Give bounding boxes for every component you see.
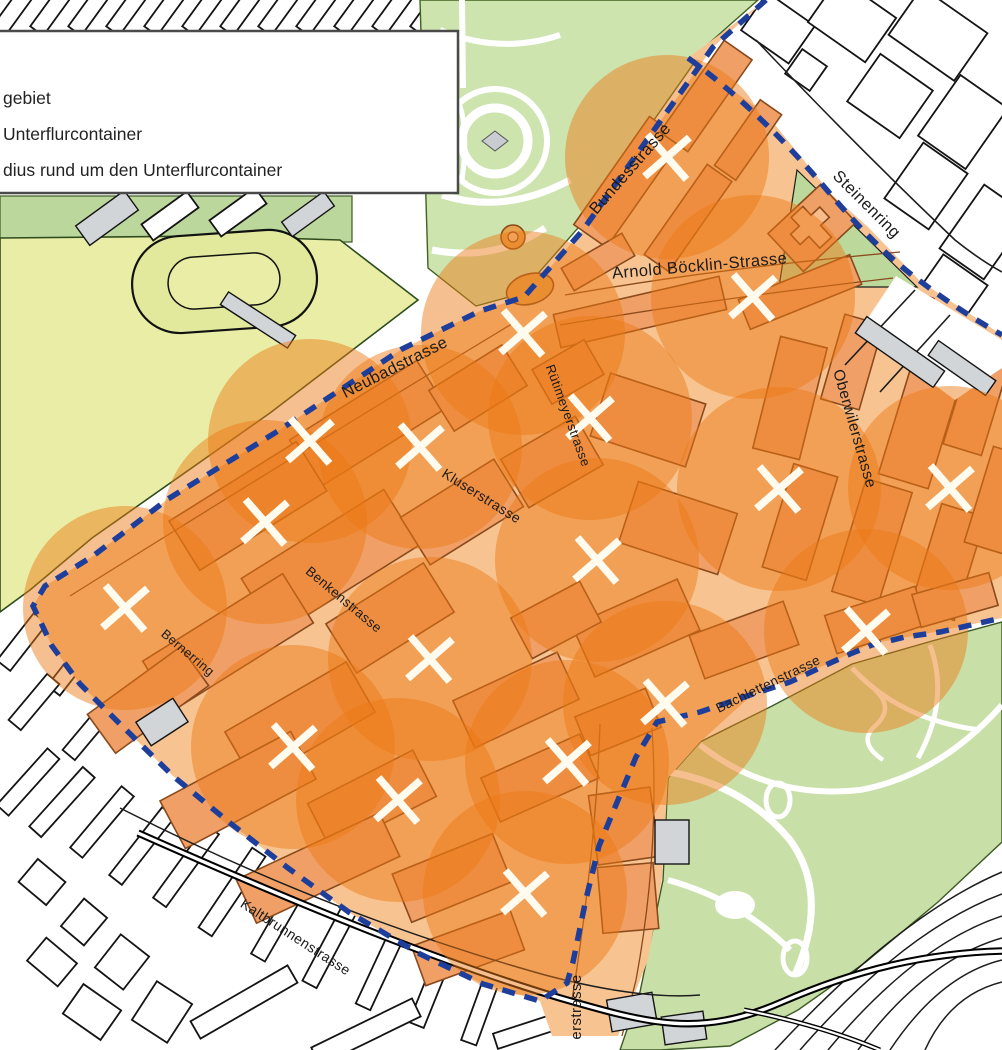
park-pond xyxy=(715,891,755,919)
legend: gebietUnterflurcontainerdius rund um den… xyxy=(0,31,458,193)
paved-block xyxy=(661,1011,706,1045)
legend-item-2: dius rund um den Unterflurcontainer xyxy=(3,160,282,180)
running-track xyxy=(129,227,320,337)
city-map: BundesstrasseSteinenringArnold Böcklin-S… xyxy=(0,0,1002,1050)
legend-item-0: gebiet xyxy=(3,88,51,108)
map-canvas: BundesstrasseSteinenringArnold Böcklin-S… xyxy=(0,0,1002,1050)
paved-block xyxy=(655,820,689,864)
street-label-11: erstrasse xyxy=(568,974,585,1039)
legend-item-1: Unterflurcontainer xyxy=(3,124,142,144)
